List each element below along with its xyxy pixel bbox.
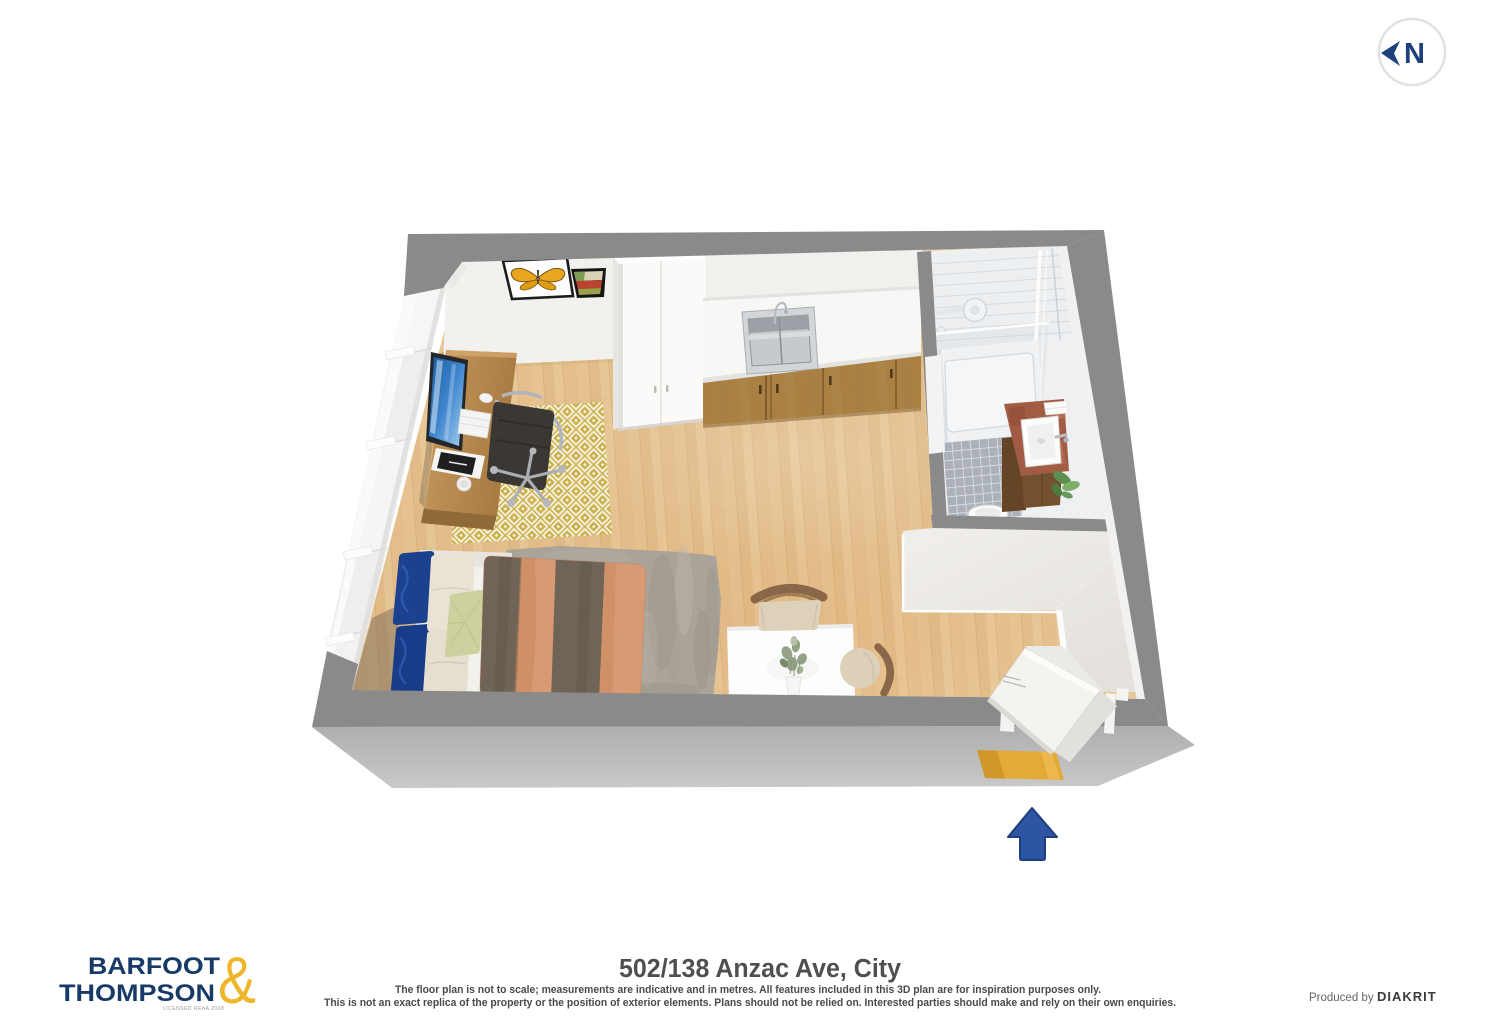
- svg-text:THOMPSON: THOMPSON: [59, 980, 215, 1007]
- svg-text:DIAKRIT: DIAKRIT: [1377, 989, 1437, 1004]
- svg-text:502/138 Anzac Ave, City: 502/138 Anzac Ave, City: [619, 955, 902, 983]
- svg-text:Produced by: Produced by: [1309, 992, 1374, 1004]
- svg-text:This is not an exact replica o: This is not an exact replica of the prop…: [324, 997, 1176, 1009]
- svg-text:BARFOOT: BARFOOT: [88, 953, 220, 980]
- svg-text:LICENSED REAA 2008: LICENSED REAA 2008: [163, 1006, 224, 1012]
- svg-text:The floor plan is not to scale: The floor plan is not to scale; measurem…: [395, 984, 1101, 996]
- svg-text:N: N: [1404, 38, 1425, 70]
